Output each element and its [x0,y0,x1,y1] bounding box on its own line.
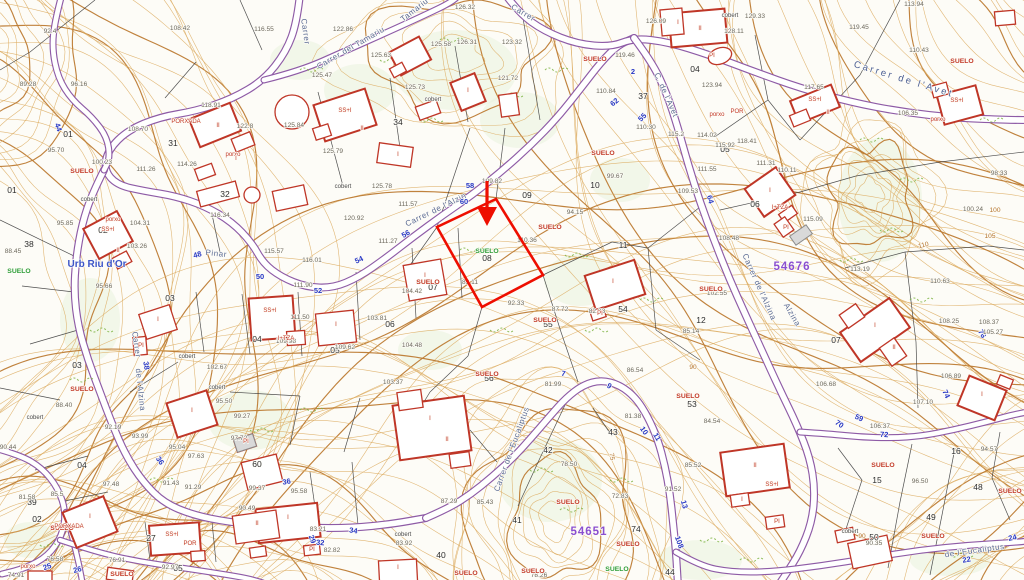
elevation-label: 88.45 [5,248,22,255]
elevation-label: 104.48 [402,342,423,349]
elevation-label: 95.70 [48,147,65,154]
building-annotation-label: I+TZA [772,205,789,211]
elevation-label: 84.54 [704,418,721,425]
elevation-label: 121.72 [498,75,519,82]
cadastral-map: CarrerCarrer del TamariuTamariuCarrerCar… [0,0,1024,580]
elevation-label: 89.28 [20,81,37,88]
building-annotation-label: porxo [225,152,241,158]
elevation-label: 100.24 [963,206,984,213]
elevation-label: 115.2 [668,131,684,138]
elevation-label: 81.38 [625,413,642,420]
street-number-label: 54 [353,254,365,266]
parcel-number-label: 04 [690,64,700,74]
elevation-label: 93.99 [132,433,149,440]
elevation-label: 119.45 [849,24,869,31]
parcel-number-label: 60 [252,459,262,469]
elevation-label: 108.70 [128,126,149,133]
building-annotation-label: I+TZA [278,336,295,342]
elevation-label: 95.58 [291,488,308,495]
street-number-label: 58 [466,181,474,190]
elevation-label: 125.79 [323,148,344,155]
street-number-label: 34 [349,525,359,535]
elevation-label: 106.89 [941,373,962,380]
parcel-number-label: 03 [165,293,175,303]
building-annotation-label: PI [243,439,249,445]
elevation-label: 125.84 [284,122,305,129]
street-name-label: Carrer de l'Avet [852,59,955,100]
building-annotation-label: SS+I [338,108,352,114]
building-annotation-label: SS+I [263,308,277,314]
building-annotation-label: porxo [930,117,946,123]
elevation-label: 116.34 [210,212,230,219]
elevation-label: 90.49 [239,505,256,512]
parcel-number-label: 11 [619,240,628,250]
building-annotation-label: PI [709,53,715,59]
parcel-number-label: 41 [512,515,522,525]
land-use-label: SUELO [7,268,30,275]
land-use-label: SUELO [454,570,477,577]
elevation-label: 103.37 [383,379,404,386]
parcel-number-label: 15 [872,475,882,485]
contour-elevation-label: 100 [989,207,1000,214]
elevation-label: 123.94 [702,82,723,89]
zone-number-label: 54676 [774,261,811,273]
land-use-label: SUELO [998,488,1021,495]
elevation-label: 125.78 [372,183,393,190]
building-annotation-label: PI [138,343,144,349]
elevation-label: 99.37 [249,485,266,492]
parcel-number-label: 04 [77,460,87,470]
elevation-label: 110.63 [930,278,950,285]
parcel-number-label: 01 [63,129,73,139]
parcel-number-label: 48 [973,482,983,492]
parcel-number-label: 31 [168,138,178,148]
elevation-label: 92.97 [162,564,179,571]
land-use-label: SUELO [583,56,606,63]
elevation-label: 111.57 [398,201,418,208]
elevation-label: 96.50 [912,478,929,485]
building-annotation-label: SS+I [765,482,779,488]
parcel-number-label: 01 [7,185,17,195]
building-annotation-label: II [216,123,220,129]
elevation-label: 106.68 [816,381,837,388]
parcel-number-label: 12 [696,315,706,325]
land-use-label: SUELO [521,568,544,575]
elevation-label: 94.15 [567,209,584,216]
elevation-label: 115.09 [803,216,823,223]
land-use-label: SUELO [591,150,614,157]
elevation-label: 85.43 [477,499,494,506]
parcel-number-label: 54 [618,304,628,314]
street-name-label: de l'Alzina [134,368,147,412]
elevation-label: 76.58 [47,556,64,563]
street-number-label: 62 [608,96,620,108]
elevation-label: 114.02 [697,132,717,139]
elevation-label: 91.43 [163,480,180,487]
elevation-label: 110.11 [777,167,797,174]
elevation-label: 120.92 [344,215,365,222]
elevation-label: 123.32 [502,39,523,46]
elevation-label: 92.19 [105,424,122,431]
building-annotation-label: cobert [81,197,98,203]
building-annotation-label: II [116,248,120,254]
parcel-number-label: 53 [687,399,697,409]
parcel-number-label: 42 [543,445,553,455]
elevation-label: 111.31 [756,160,776,167]
elevation-label: 81.99 [545,381,562,388]
land-use-label: SUELO [533,317,556,324]
elevation-label: 102.67 [207,364,228,371]
contour-elevation-label: 75 [607,453,615,462]
elevation-label: 74.91 [8,572,25,579]
elevation-label: 83.21 [310,526,327,533]
contour-elevation-label: 105 [984,233,995,240]
street-name-label: Alzina [782,302,802,328]
elevation-label: 126.31 [457,39,478,46]
elevation-label: 113.19 [850,266,870,273]
street-number-label: 48 [192,249,202,260]
street-number-label: 2 [631,67,635,76]
elevation-label: 97.63 [188,453,205,460]
parcel-number-label: 34 [393,117,403,127]
elevation-label: 96.16 [71,81,88,88]
land-use-label: SUELO [699,286,722,293]
street-number-label: 64 [705,194,716,205]
elevation-label: 115.57 [264,248,284,255]
elevation-label: 125.63 [371,52,392,59]
elevation-label: 92.4 [44,28,57,35]
land-use-label: SUELO [475,371,498,378]
building-annotation-label: porxo [105,217,121,223]
building-annotation-label: PORXADA [54,524,83,530]
elevation-label: 122.86 [333,26,354,33]
elevation-label: 76.91 [109,557,126,564]
parcel-number-label: 02 [32,514,42,524]
elevation-label: 118.91 [201,102,221,109]
elevation-label: 126.32 [455,4,476,11]
elevation-label: 85.52 [685,462,702,469]
elevation-label: 109.82 [482,178,503,185]
elevation-label: 95.04 [169,444,186,451]
elevation-label: 98.33 [991,170,1008,177]
vegetation-areas [4,30,990,580]
land-use-label: SUELO [871,462,894,469]
elevation-label: 92.33 [508,300,525,307]
land-use-label: SUELO [950,58,973,65]
elevation-label: 125.73 [405,84,426,91]
elevation-label: 125.58 [431,41,452,48]
contour-elevation-label: 110 [918,241,930,251]
building-annotation-label: PI [774,519,780,525]
land-use-label: SUELO [921,533,944,540]
elevation-label: 119.46 [615,52,635,59]
street-number-label: 59 [853,412,864,424]
contour-elevation-label: 90 [689,364,697,371]
elevation-label: 118.41 [737,138,757,145]
building-annotation-label: POR [730,109,744,115]
elevation-label: 104.42 [402,288,423,295]
elevation-label: 111.55 [697,166,717,173]
elevation-label: 110.30 [636,124,656,131]
building-annotation-label: II [360,126,364,132]
elevation-label: 103.81 [367,315,388,322]
elevation-label: 110.84 [596,88,616,95]
building-annotation-label: cobert [27,415,44,421]
parcel-number-label: 43 [608,427,618,437]
parcel-number-label: 07 [831,335,841,345]
street-number-label: 55 [636,111,648,123]
land-use-label: SUELO [556,499,579,506]
building-annotation-label: II [753,463,757,469]
elevation-label: 111.27 [378,238,398,245]
parcel-number-label: 03 [72,360,82,370]
elevation-label: 100.23 [92,159,113,166]
elevation-label: 87.72 [552,306,569,313]
land-use-label: SUELO [110,571,133,578]
building-annotation-label: cobert [209,385,226,391]
elevation-label: 97.48 [103,481,120,488]
elevation-label: 111.26 [136,166,156,173]
parcel-number-label: 16 [951,446,961,456]
parcel-number-label: 49 [926,512,936,522]
elevation-label: 108.25 [939,318,960,325]
building-annotation-label: SS+I [165,532,179,538]
parcel-number-label: 04 [252,334,262,344]
elevation-label: 111.90 [293,282,313,289]
street-number-label: 22 [962,554,972,564]
elevation-label: 87.29 [441,498,458,505]
land-use-label: SUELO [676,393,699,400]
parcel-number-label: 06 [750,199,760,209]
elevation-label: 86.54 [627,367,644,374]
building-annotation-label: porxo [20,564,36,570]
building-annotation-label: cobert [179,354,196,360]
elevation-label: 103.26 [127,243,148,250]
building-annotation-label: PI [783,225,789,231]
building-annotation-label: SS+I [101,227,115,233]
elevation-label: 82.82 [324,547,341,554]
building-annotation-label: PORXADA [171,119,200,125]
building-annotation-label: cobert [842,529,859,535]
parcel-number-label: 09 [522,190,532,200]
elevation-label: 108.37 [979,319,1000,326]
parcel-number-label: 10 [590,180,600,190]
elevation-label: 116.55 [254,26,274,33]
elevation-label: 95.50 [216,398,233,405]
building-annotation-label: II [255,521,259,527]
building-annotation-label: II [892,345,896,351]
elevation-label: 111.50 [290,314,310,321]
elevation-label: 115.92 [715,142,735,149]
elevation-label: 72.83 [612,493,629,500]
elevation-label: 117.65 [804,84,824,91]
elevation-label: 122.8 [237,123,254,130]
elevation-label: 106.37 [870,423,891,430]
parcel-number-label: 44 [665,567,675,577]
elevation-label: 91.29 [185,484,202,491]
parcel-number-label: 38 [24,239,34,249]
building-annotation-label: cobert [335,184,352,190]
parcel-number-label: 27 [146,533,156,543]
elevation-label: 109.62 [335,344,356,351]
map-canvas: CarrerCarrer del TamariuTamariuCarrerCar… [0,0,1024,580]
parcel-number-label: 74 [631,524,641,534]
street-number-label: 38 [141,361,151,371]
elevation-label: 99.27 [234,413,251,420]
elevation-label: 85.5 [51,491,64,498]
elevation-label: 116.01 [302,257,322,264]
elevation-label: 90.44 [0,444,17,451]
building-annotation-label: II [445,437,449,443]
elevation-label: 106.35 [898,110,919,117]
elevation-label: 110.43 [909,47,929,54]
building-annotation-label: cobert [395,532,412,538]
elevation-label: 105.27 [983,329,1004,336]
land-use-label: SUELO [605,566,628,573]
building-annotation-label: POR [183,541,197,547]
street-number-label: 52 [314,286,322,295]
parcel-number-label: 32 [220,189,230,199]
land-use-label: SUELO [416,279,439,286]
elevation-label: 78.50 [561,461,578,468]
building-annotation-label: SS+I [808,97,822,103]
street-number-label: 74 [940,388,952,400]
parcel-number-label: 40 [436,550,446,560]
building-annotation-label: cobert [722,13,739,19]
elevation-label: 81.58 [19,494,36,501]
elevation-label: 126.09 [646,18,667,25]
elevation-label: 108.48 [719,235,740,242]
parcel-number-label: 37 [638,91,648,101]
street-number-label: 36 [282,476,292,486]
zone-number-label: 54651 [571,526,608,538]
building-annotation-label: PI [309,547,315,553]
elevation-label: 113.94 [904,1,924,8]
land-use-label: SUELO [70,386,93,393]
elevation-label: 104.31 [130,220,151,227]
building-annotation-label: II [698,26,702,32]
elevation-label: 99.67 [607,173,624,180]
elevation-label: 109.53 [678,188,699,195]
elevation-label: 95.66 [96,283,113,290]
street-number-label: 72 [880,430,889,440]
elevation-label: 95.85 [57,220,74,227]
elevation-label: 94.57 [981,446,998,453]
elevation-label: 129.33 [745,13,766,20]
building-annotation-label: SS+I [950,98,964,104]
street-number-label: 60 [460,197,468,206]
elevation-label: 85.14 [683,328,700,335]
elevation-label: 114.26 [177,161,197,168]
elevation-label: 91.52 [665,486,682,493]
land-use-label: SUELO [616,541,639,548]
elevation-label: 83.92 [396,540,413,547]
land-use-label: SUELO [475,248,498,255]
elevation-label: 88.40 [56,402,73,409]
building-annotation-label: cobert [425,97,442,103]
street-number-label: 7 [561,369,567,379]
urbanization-label: Urb Riu d'Or [67,259,126,270]
contour-elevation-label: 90 [858,533,866,540]
land-use-label: SUELO [538,224,561,231]
elevation-label: 107.10 [913,399,934,406]
building-annotation-label: PI [597,311,603,317]
building-annotation-label: porxo [709,112,725,118]
elevation-label: 90.35 [866,540,883,547]
land-use-label: SUELO [70,168,93,175]
elevation-label: 128.11 [724,28,744,35]
building-annotation-label: II [826,110,830,116]
street-number-label: 50 [256,272,264,281]
elevation-label: 108.42 [170,25,191,32]
elevation-label: 125.47 [312,72,333,79]
